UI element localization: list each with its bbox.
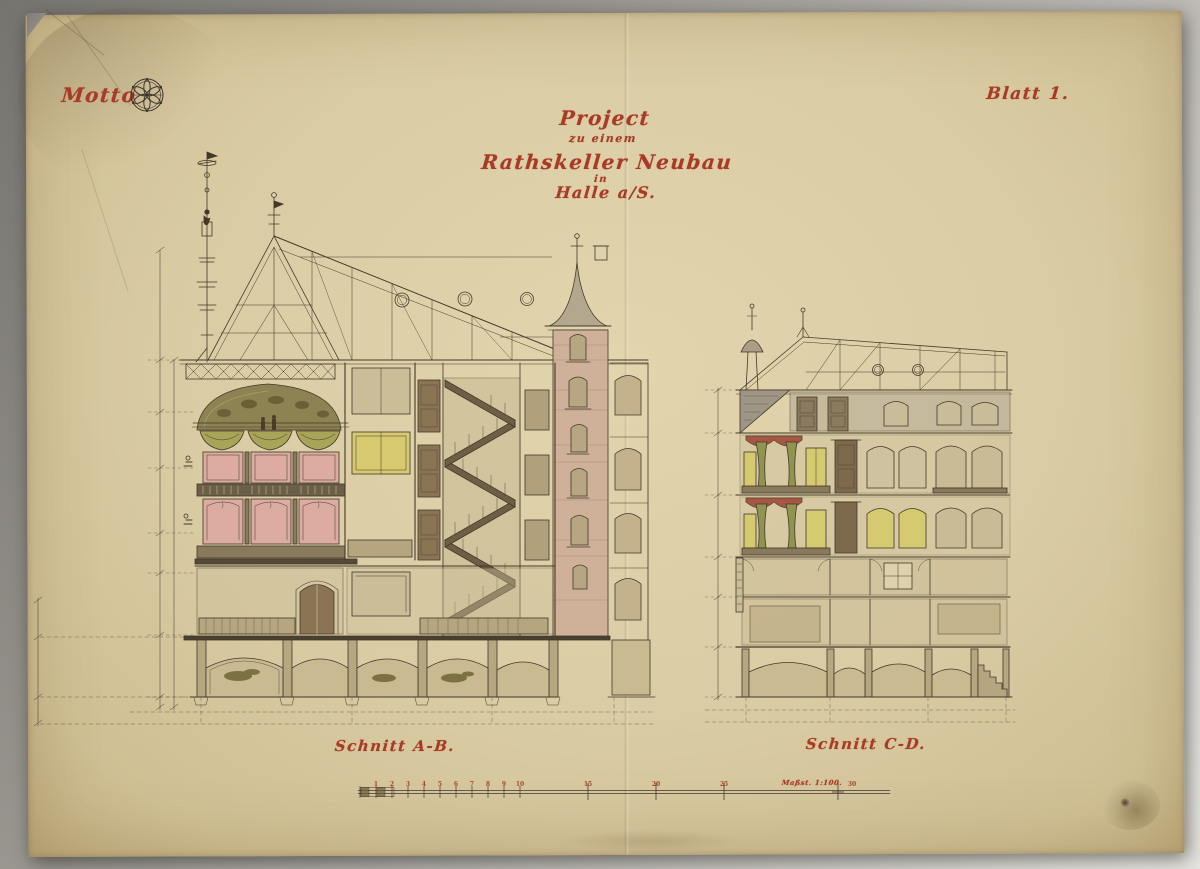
roof-oculi bbox=[395, 292, 534, 307]
scale-tick: 30 bbox=[848, 781, 856, 788]
ornate-storey-lower bbox=[736, 497, 1010, 557]
hexafoil-rosette-icon bbox=[128, 76, 166, 114]
scale-tick: 7 bbox=[470, 781, 474, 788]
section-cd-drawing bbox=[695, 285, 1025, 735]
caption-section-cd: Schnitt C-D. bbox=[805, 735, 927, 753]
ornate-storey-upper bbox=[736, 435, 1010, 495]
attic-storey bbox=[736, 390, 1012, 433]
scale-tick: 8 bbox=[486, 781, 490, 788]
scale-tick: 9 bbox=[502, 781, 506, 788]
pink-panel-row-upper bbox=[203, 452, 339, 483]
festsaal-hall bbox=[184, 364, 357, 564]
scale-tick: 3 bbox=[406, 781, 410, 788]
roof-truss bbox=[736, 304, 1012, 394]
motto-label: Motto bbox=[61, 83, 138, 107]
scale-tick: 25 bbox=[720, 781, 728, 788]
plain-storeys bbox=[736, 558, 1010, 647]
scale-tick: 10 bbox=[516, 781, 524, 788]
right-wing-facade bbox=[608, 363, 655, 697]
caption-section-ab: Schnitt A-B. bbox=[334, 737, 456, 755]
scale-tick: 1 bbox=[374, 781, 378, 788]
cellar-vaults bbox=[184, 636, 610, 705]
scale-tick: 5 bbox=[438, 781, 442, 788]
finial-mast bbox=[196, 152, 217, 362]
cellar-vaults bbox=[705, 649, 1015, 722]
green-drapes bbox=[200, 431, 340, 450]
dimension-lines bbox=[705, 387, 738, 700]
balcony-band bbox=[197, 484, 345, 496]
scale-tick: 15 bbox=[584, 781, 592, 788]
corner-damage bbox=[27, 13, 73, 47]
pink-panel-row-lower bbox=[203, 499, 339, 544]
scale-tick: 20 bbox=[652, 781, 660, 788]
title-line-1: Project bbox=[559, 106, 652, 130]
scale-tick: 6 bbox=[454, 781, 458, 788]
scale-tick: 2 bbox=[390, 781, 394, 788]
sheet-number-label: Blatt 1. bbox=[986, 84, 1071, 104]
scale-label: Maßst. 1:100. bbox=[781, 778, 842, 787]
photographed-architectural-drawing: Motto Blatt 1. Project zu einem Rathskel… bbox=[0, 0, 1200, 869]
scale-tick: 4 bbox=[422, 781, 426, 788]
section-ab-drawing bbox=[30, 140, 660, 735]
ground-storey bbox=[195, 566, 555, 634]
